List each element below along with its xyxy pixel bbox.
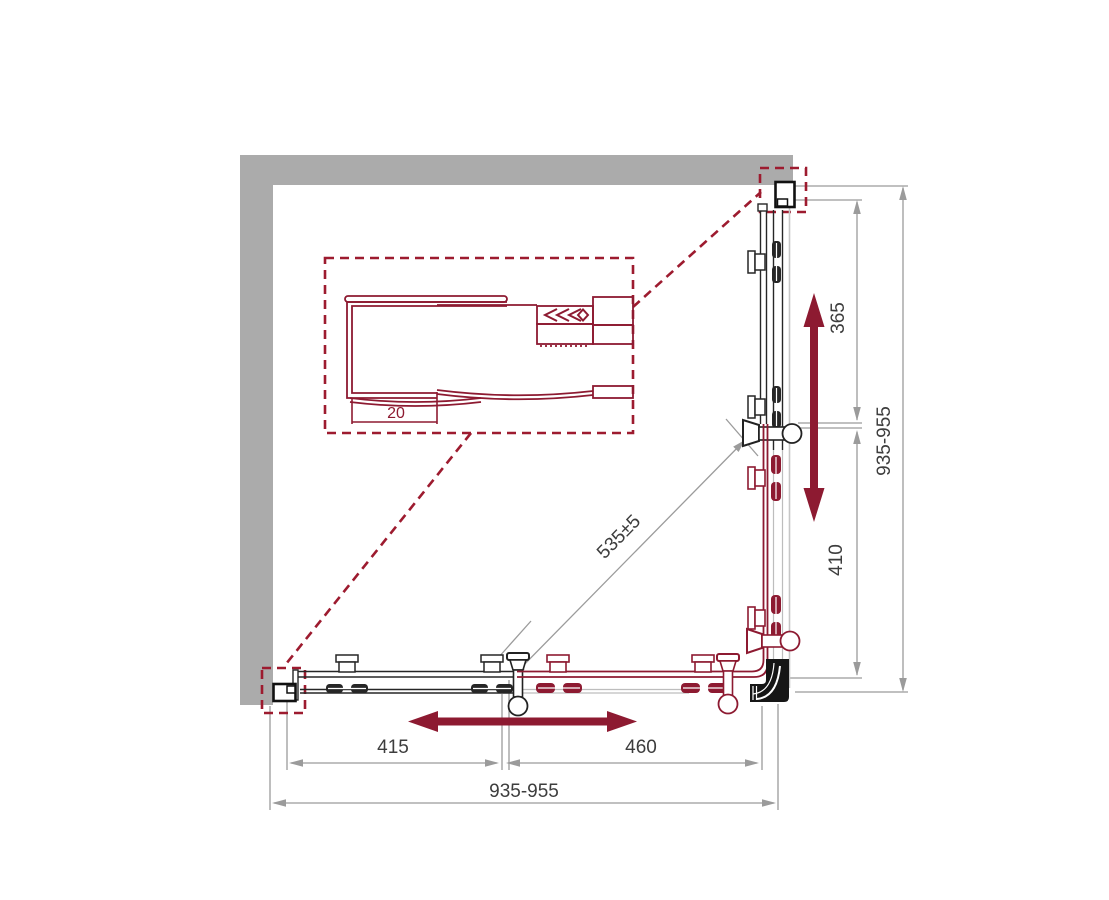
roller-bottom-mid bbox=[471, 655, 513, 693]
dim-right-365 bbox=[788, 200, 862, 428]
arrowhead-icon bbox=[853, 200, 861, 214]
arrowhead-icon bbox=[853, 662, 861, 676]
wall-bracket-bottom-left bbox=[274, 684, 296, 701]
arrowhead-icon bbox=[289, 759, 303, 767]
panel-endcap-top bbox=[758, 204, 767, 211]
roller-bottom-door-left bbox=[536, 655, 582, 693]
roller-right-door-upper bbox=[748, 455, 781, 501]
wall bbox=[240, 155, 793, 705]
sliding-door-frame bbox=[517, 424, 768, 677]
roller-bottom-left bbox=[326, 655, 368, 693]
label-profile-20: 20 bbox=[387, 405, 405, 422]
slide-arrow-vertical-icon bbox=[804, 293, 825, 522]
callouts bbox=[262, 168, 806, 713]
arrowhead-icon bbox=[506, 759, 520, 767]
label-dim-bottom-total: 935-955 bbox=[489, 781, 559, 802]
arrowhead-icon bbox=[853, 407, 861, 421]
label-dim-415: 415 bbox=[377, 737, 409, 758]
dim-bottom-415 bbox=[289, 759, 499, 767]
wall-top bbox=[240, 155, 793, 185]
arrowhead-icon bbox=[899, 186, 907, 200]
arrowhead-icon bbox=[853, 430, 861, 444]
dim-bottom-460 bbox=[506, 759, 759, 767]
arrowhead-icon bbox=[745, 759, 759, 767]
arrowhead-icon bbox=[485, 759, 499, 767]
roller-right-lower bbox=[748, 386, 781, 428]
wall-bracket-top-right bbox=[776, 182, 795, 207]
leader-line-bottom bbox=[286, 433, 471, 664]
sliding-doors bbox=[517, 424, 800, 714]
wall-left bbox=[240, 155, 273, 705]
leader-line-top bbox=[633, 192, 761, 307]
dim-diagonal-535 bbox=[498, 419, 758, 676]
fixed-structure bbox=[274, 182, 802, 716]
seal-chevrons-icon bbox=[545, 309, 588, 321]
corner-connector bbox=[750, 659, 789, 702]
arrowhead-icon bbox=[272, 799, 286, 807]
label-dim-365: 365 bbox=[828, 302, 849, 334]
label-dim-diagonal: 535±5 bbox=[593, 511, 645, 563]
technical-drawing-page: 365 935-955 410 415 460 935-955 535±5 bbox=[0, 0, 1109, 900]
label-dim-410: 410 bbox=[826, 544, 847, 576]
arrowhead-icon bbox=[762, 799, 776, 807]
arrowhead-icon bbox=[899, 678, 907, 692]
shower-enclosure-diagram: 365 935-955 410 415 460 935-955 535±5 bbox=[0, 0, 1109, 900]
label-dim-right-total: 935-955 bbox=[874, 406, 895, 476]
roller-right-upper bbox=[748, 241, 781, 283]
label-dim-460: 460 bbox=[625, 737, 657, 758]
